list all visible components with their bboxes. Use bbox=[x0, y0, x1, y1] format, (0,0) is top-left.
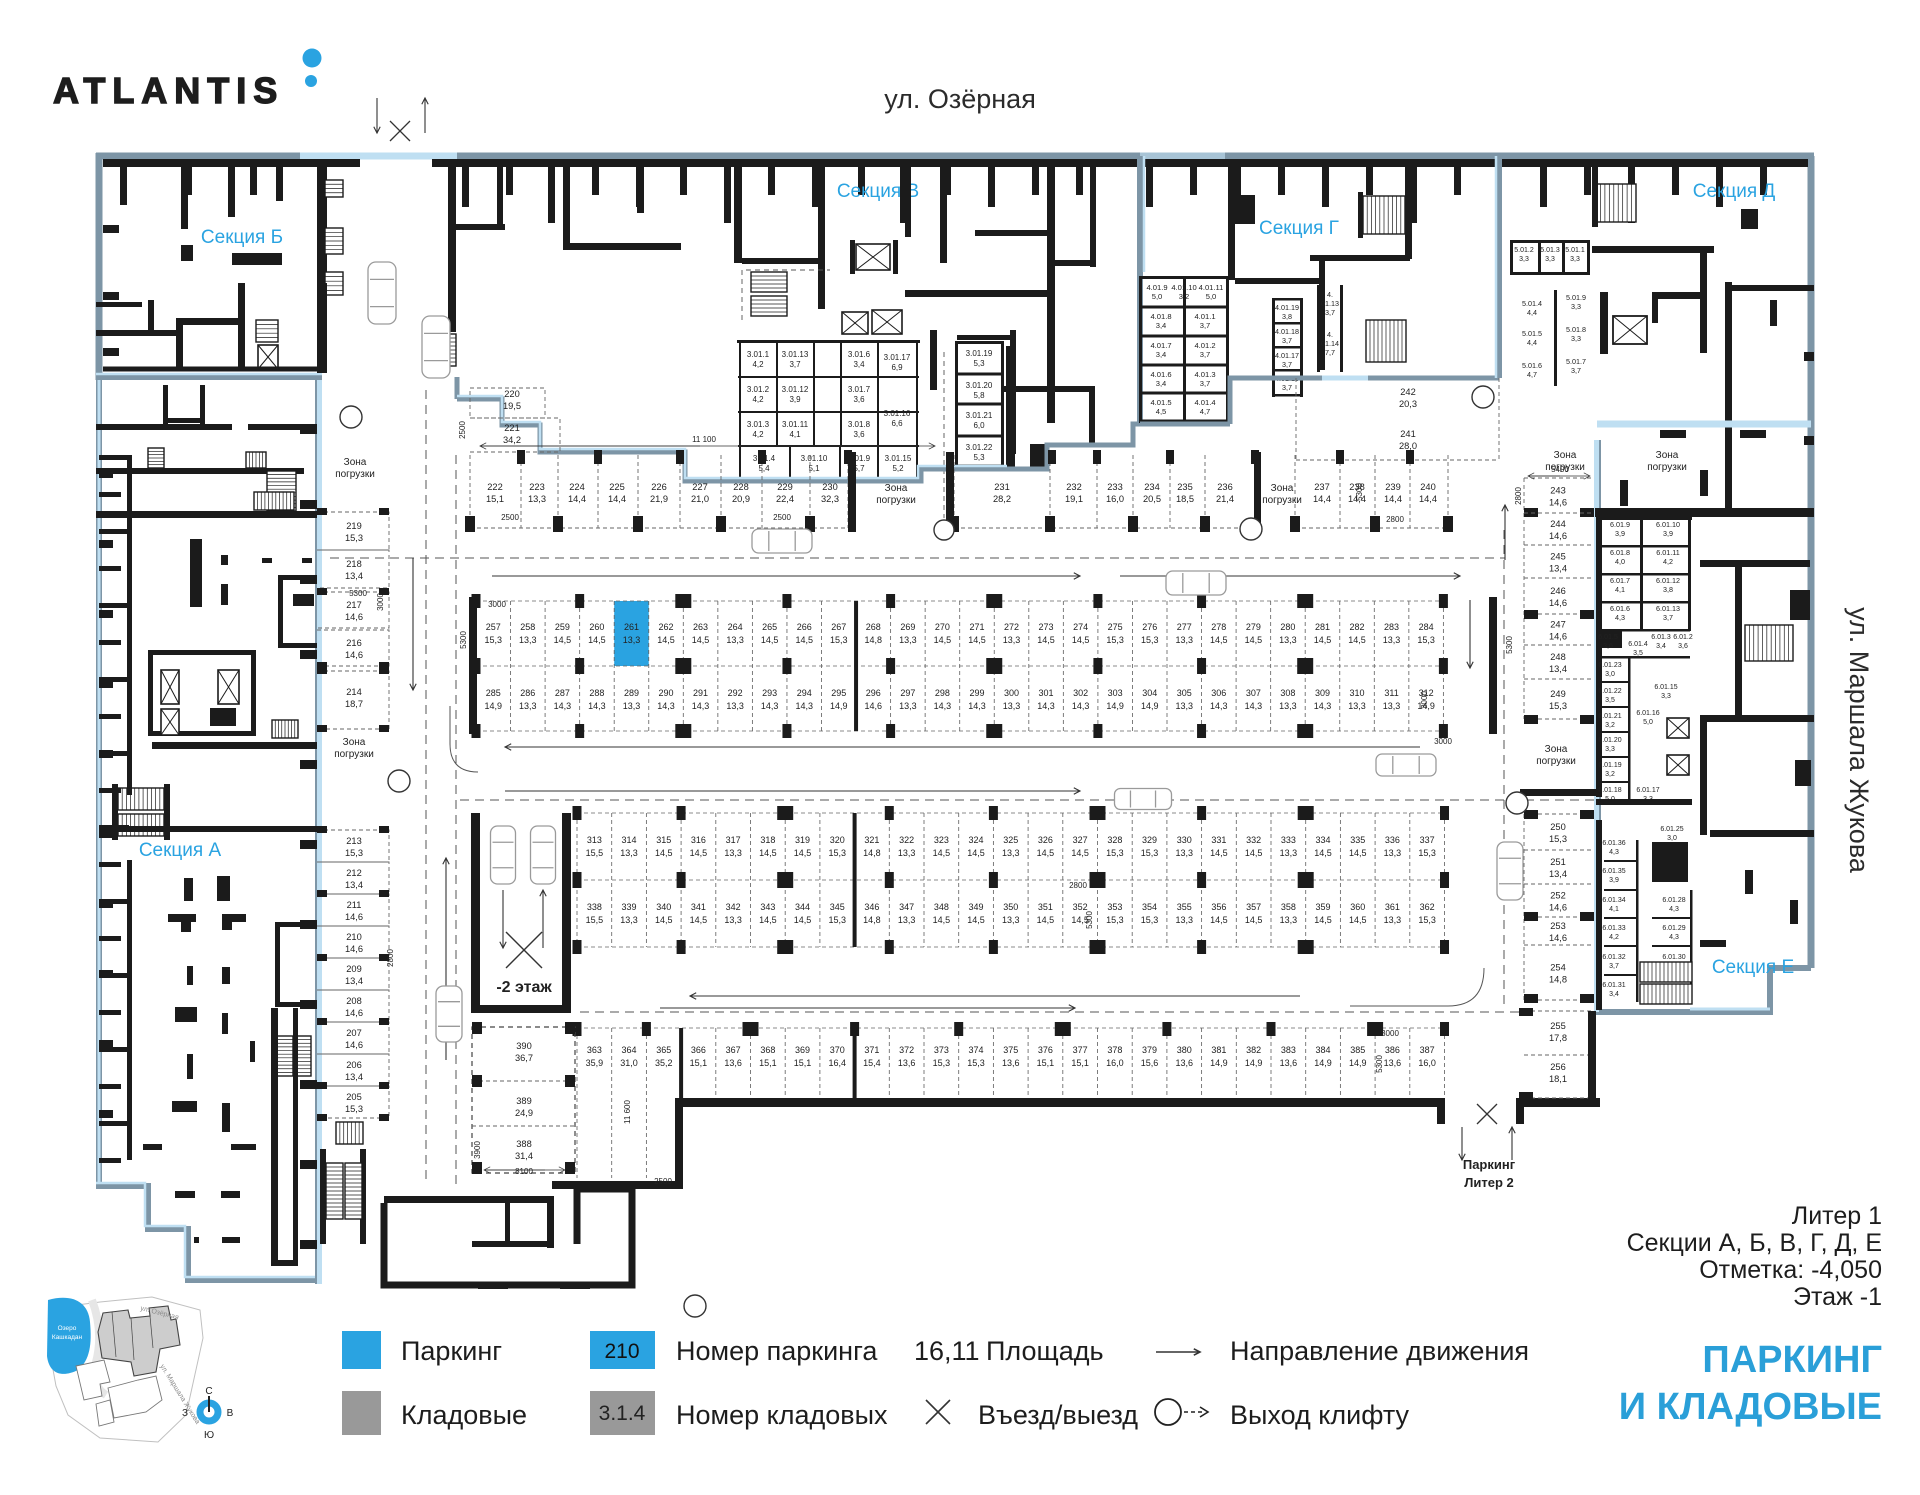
svg-text:6.01.28: 6.01.28 bbox=[1662, 897, 1685, 904]
svg-text:222: 222 bbox=[487, 482, 503, 492]
svg-text:24,9: 24,9 bbox=[515, 1108, 533, 1118]
svg-text:305: 305 bbox=[1177, 688, 1192, 698]
svg-text:4.01.4: 4.01.4 bbox=[1194, 398, 1215, 407]
svg-text:Зона: Зона bbox=[343, 737, 366, 748]
svg-text:334: 334 bbox=[1316, 835, 1331, 845]
svg-text:14,9: 14,9 bbox=[1349, 1058, 1367, 1068]
svg-text:19,1: 19,1 bbox=[1065, 494, 1083, 504]
svg-text:20,9: 20,9 bbox=[732, 494, 750, 504]
svg-text:5.01.7: 5.01.7 bbox=[1566, 357, 1586, 366]
svg-text:14,5: 14,5 bbox=[1348, 635, 1366, 645]
svg-text:365: 365 bbox=[656, 1045, 671, 1055]
svg-text:13,3: 13,3 bbox=[519, 701, 537, 711]
svg-text:13,4: 13,4 bbox=[1549, 564, 1567, 574]
svg-text:Зона: Зона bbox=[885, 483, 908, 494]
svg-text:15,3: 15,3 bbox=[967, 1058, 985, 1068]
svg-text:13,3: 13,3 bbox=[726, 635, 744, 645]
svg-text:6.01.29: 6.01.29 bbox=[1662, 925, 1685, 932]
svg-text:232: 232 bbox=[1066, 482, 1082, 492]
svg-text:15,3: 15,3 bbox=[345, 1104, 363, 1114]
svg-text:15,1: 15,1 bbox=[1071, 1058, 1089, 1068]
svg-text:259: 259 bbox=[555, 622, 570, 632]
svg-text:13,3: 13,3 bbox=[528, 494, 546, 504]
svg-text:330: 330 bbox=[1177, 835, 1192, 845]
svg-text:Зона: Зона bbox=[1554, 450, 1577, 461]
svg-text:4.01.11: 4.01.11 bbox=[1199, 283, 1224, 292]
svg-text:14,3: 14,3 bbox=[1072, 701, 1090, 711]
svg-text:345: 345 bbox=[830, 902, 845, 912]
svg-text:5300: 5300 bbox=[349, 589, 367, 598]
svg-text:18,5: 18,5 bbox=[1176, 494, 1194, 504]
svg-text:13,3: 13,3 bbox=[1384, 915, 1402, 925]
svg-text:233: 233 bbox=[1107, 482, 1123, 492]
svg-text:погрузки: погрузки bbox=[1647, 462, 1687, 473]
svg-text:217: 217 bbox=[346, 600, 362, 610]
svg-text:15,3: 15,3 bbox=[1141, 848, 1159, 858]
svg-text:14,3: 14,3 bbox=[554, 701, 572, 711]
svg-text:6,6: 6,6 bbox=[891, 419, 903, 428]
svg-text:379: 379 bbox=[1142, 1045, 1157, 1055]
svg-text:13,6: 13,6 bbox=[1280, 1058, 1298, 1068]
svg-text:214: 214 bbox=[346, 687, 362, 697]
svg-text:3.01.22: 3.01.22 bbox=[966, 443, 993, 452]
svg-text:3,2: 3,2 bbox=[1605, 722, 1615, 729]
svg-text:Секция Г: Секция Г bbox=[1259, 218, 1339, 239]
svg-text:372: 372 bbox=[899, 1045, 914, 1055]
svg-text:252: 252 bbox=[1550, 891, 1566, 901]
svg-text:6.01.6: 6.01.6 bbox=[1610, 604, 1630, 613]
svg-text:274: 274 bbox=[1073, 622, 1088, 632]
svg-text:275: 275 bbox=[1108, 622, 1123, 632]
svg-text:308: 308 bbox=[1280, 688, 1295, 698]
svg-text:239: 239 bbox=[1385, 482, 1401, 492]
svg-text:3,9: 3,9 bbox=[1663, 529, 1673, 538]
svg-text:3,7: 3,7 bbox=[1663, 613, 1673, 622]
svg-text:5400: 5400 bbox=[1551, 465, 1569, 474]
svg-text:265: 265 bbox=[762, 622, 777, 632]
svg-text:5.01.4: 5.01.4 bbox=[1522, 299, 1542, 308]
svg-text:14,6: 14,6 bbox=[1549, 498, 1567, 508]
svg-text:257: 257 bbox=[486, 622, 501, 632]
svg-text:255: 255 bbox=[1550, 1021, 1566, 1031]
svg-text:15,3: 15,3 bbox=[1418, 848, 1436, 858]
svg-text:15,3: 15,3 bbox=[1141, 915, 1159, 925]
svg-text:6.01.4: 6.01.4 bbox=[1628, 641, 1648, 648]
svg-text:14,6: 14,6 bbox=[1549, 531, 1567, 541]
svg-text:322: 322 bbox=[899, 835, 914, 845]
svg-text:13,3: 13,3 bbox=[1348, 701, 1366, 711]
svg-text:315: 315 bbox=[656, 835, 671, 845]
svg-text:3.01.20: 3.01.20 bbox=[966, 381, 993, 390]
svg-text:287: 287 bbox=[555, 688, 570, 698]
svg-text:243: 243 bbox=[1550, 486, 1566, 496]
svg-text:235: 235 bbox=[1177, 482, 1193, 492]
svg-text:3,4: 3,4 bbox=[1656, 643, 1666, 650]
svg-text:248: 248 bbox=[1550, 652, 1566, 662]
svg-text:251: 251 bbox=[1550, 857, 1566, 867]
svg-text:3.01.1: 3.01.1 bbox=[747, 350, 770, 359]
svg-text:3,2: 3,2 bbox=[1179, 292, 1190, 301]
svg-text:01.13: 01.13 bbox=[1321, 299, 1339, 308]
svg-text:2800: 2800 bbox=[386, 949, 395, 967]
svg-text:4,2: 4,2 bbox=[752, 430, 764, 439]
svg-text:5300: 5300 bbox=[1085, 911, 1094, 929]
svg-text:6.01.31: 6.01.31 bbox=[1602, 982, 1625, 989]
svg-text:14,5: 14,5 bbox=[1314, 848, 1332, 858]
svg-text:6.01.9: 6.01.9 bbox=[1610, 520, 1630, 529]
svg-text:Секция Д: Секция Д bbox=[1693, 181, 1776, 202]
svg-text:369: 369 bbox=[795, 1045, 810, 1055]
svg-text:14,6: 14,6 bbox=[345, 1008, 363, 1018]
svg-text:358: 358 bbox=[1281, 902, 1296, 912]
svg-text:333: 333 bbox=[1281, 835, 1296, 845]
svg-text:6.01.34: 6.01.34 bbox=[1602, 897, 1625, 904]
svg-text:2500: 2500 bbox=[773, 513, 791, 522]
svg-text:376: 376 bbox=[1038, 1045, 1053, 1055]
svg-text:212: 212 bbox=[346, 868, 362, 878]
svg-text:245: 245 bbox=[1550, 552, 1566, 562]
svg-text:278: 278 bbox=[1211, 622, 1226, 632]
svg-text:14,5: 14,5 bbox=[588, 635, 606, 645]
svg-text:13,4: 13,4 bbox=[345, 1072, 363, 1082]
svg-text:Выход клифту: Выход клифту bbox=[1230, 1400, 1410, 1430]
svg-text:19,5: 19,5 bbox=[503, 401, 521, 411]
svg-text:258: 258 bbox=[520, 622, 535, 632]
svg-text:228: 228 bbox=[733, 482, 749, 492]
svg-text:377: 377 bbox=[1073, 1045, 1088, 1055]
svg-text:14,9: 14,9 bbox=[1245, 1058, 1263, 1068]
svg-text:14,3: 14,3 bbox=[1210, 701, 1228, 711]
svg-text:359: 359 bbox=[1316, 902, 1331, 912]
svg-text:14,5: 14,5 bbox=[933, 915, 951, 925]
svg-text:279: 279 bbox=[1246, 622, 1261, 632]
svg-text:326: 326 bbox=[1038, 835, 1053, 845]
svg-text:6.01.19: 6.01.19 bbox=[1598, 762, 1621, 769]
svg-text:389: 389 bbox=[516, 1096, 532, 1106]
svg-text:13,3: 13,3 bbox=[1003, 635, 1021, 645]
svg-text:3.01.12: 3.01.12 bbox=[782, 385, 809, 394]
svg-text:297: 297 bbox=[900, 688, 915, 698]
svg-text:3,7: 3,7 bbox=[1200, 321, 1211, 330]
svg-text:3,8: 3,8 bbox=[1663, 585, 1673, 594]
svg-text:4.: 4. bbox=[1327, 290, 1333, 299]
svg-text:ул. Озёрная: ул. Озёрная bbox=[884, 84, 1036, 114]
svg-text:14,9: 14,9 bbox=[485, 701, 503, 711]
svg-text:211: 211 bbox=[347, 900, 362, 910]
svg-text:18,7: 18,7 bbox=[345, 699, 363, 709]
svg-text:351: 351 bbox=[1038, 902, 1053, 912]
svg-text:5.01.1: 5.01.1 bbox=[1565, 247, 1585, 254]
svg-text:7,7: 7,7 bbox=[1325, 348, 1335, 357]
svg-text:35,2: 35,2 bbox=[655, 1058, 673, 1068]
svg-text:339: 339 bbox=[622, 902, 637, 912]
svg-text:14,6: 14,6 bbox=[345, 612, 363, 622]
svg-text:14,3: 14,3 bbox=[761, 701, 779, 711]
svg-text:15,5: 15,5 bbox=[586, 848, 604, 858]
svg-text:3,5: 3,5 bbox=[1633, 650, 1643, 657]
svg-text:4,3: 4,3 bbox=[1669, 906, 1679, 913]
svg-text:погрузки: погрузки bbox=[334, 749, 374, 760]
svg-text:Зона: Зона bbox=[1271, 483, 1294, 494]
svg-text:4,2: 4,2 bbox=[1609, 934, 1619, 941]
svg-text:354: 354 bbox=[1142, 902, 1157, 912]
svg-text:3,4: 3,4 bbox=[1609, 991, 1619, 998]
svg-text:В: В bbox=[227, 1408, 234, 1419]
svg-text:3,6: 3,6 bbox=[853, 430, 865, 439]
svg-text:374: 374 bbox=[969, 1045, 984, 1055]
svg-text:5.01.6: 5.01.6 bbox=[1522, 361, 1542, 370]
svg-text:262: 262 bbox=[659, 622, 674, 632]
svg-text:14,5: 14,5 bbox=[1245, 915, 1263, 925]
svg-text:226: 226 bbox=[651, 482, 667, 492]
svg-text:3,0: 3,0 bbox=[1605, 671, 1615, 678]
svg-text:погрузки: погрузки bbox=[1262, 495, 1302, 506]
svg-text:14,5: 14,5 bbox=[1037, 635, 1055, 645]
svg-text:352: 352 bbox=[1073, 902, 1088, 912]
svg-text:3.01.7: 3.01.7 bbox=[848, 385, 871, 394]
svg-text:14,5: 14,5 bbox=[934, 635, 952, 645]
svg-text:14,5: 14,5 bbox=[554, 635, 572, 645]
svg-text:256: 256 bbox=[1550, 1062, 1566, 1072]
svg-text:5.01.2: 5.01.2 bbox=[1514, 247, 1534, 254]
svg-text:14,3: 14,3 bbox=[588, 701, 606, 711]
svg-text:348: 348 bbox=[934, 902, 949, 912]
svg-text:373: 373 bbox=[934, 1045, 949, 1055]
svg-text:340: 340 bbox=[656, 902, 671, 912]
svg-text:14,4: 14,4 bbox=[1419, 494, 1437, 504]
svg-text:4,2: 4,2 bbox=[752, 360, 764, 369]
svg-text:5300: 5300 bbox=[459, 631, 468, 649]
svg-text:3.01.6: 3.01.6 bbox=[848, 350, 871, 359]
svg-text:284: 284 bbox=[1419, 622, 1434, 632]
svg-text:20,5: 20,5 bbox=[1143, 494, 1161, 504]
svg-text:14,4: 14,4 bbox=[1313, 494, 1331, 504]
svg-text:356: 356 bbox=[1211, 902, 1226, 912]
svg-text:3,0: 3,0 bbox=[1667, 835, 1677, 842]
svg-text:6.01.32: 6.01.32 bbox=[1602, 954, 1625, 961]
svg-text:207: 207 bbox=[346, 1028, 362, 1038]
svg-text:313: 313 bbox=[587, 835, 602, 845]
svg-text:Номер паркинга: Номер паркинга bbox=[676, 1336, 878, 1366]
svg-text:254: 254 bbox=[1550, 963, 1566, 973]
svg-text:3900: 3900 bbox=[473, 1141, 482, 1159]
svg-text:306: 306 bbox=[1211, 688, 1226, 698]
svg-text:236: 236 bbox=[1217, 482, 1233, 492]
svg-text:Направление движения: Направление движения bbox=[1230, 1336, 1529, 1366]
svg-text:15,1: 15,1 bbox=[690, 1058, 708, 1068]
svg-text:И КЛАДОВЫЕ: И КЛАДОВЫЕ bbox=[1619, 1386, 1882, 1428]
svg-text:362: 362 bbox=[1420, 902, 1435, 912]
svg-text:4,5: 4,5 bbox=[1156, 407, 1167, 416]
svg-text:Кладовые: Кладовые bbox=[401, 1400, 527, 1430]
svg-text:13,3: 13,3 bbox=[724, 915, 742, 925]
svg-text:17,8: 17,8 bbox=[1549, 1033, 1567, 1043]
svg-text:218: 218 bbox=[346, 559, 362, 569]
svg-text:13,3: 13,3 bbox=[623, 635, 641, 645]
svg-text:28,2: 28,2 bbox=[993, 494, 1011, 504]
svg-text:14,5: 14,5 bbox=[1037, 848, 1055, 858]
svg-text:Зона: Зона bbox=[1545, 744, 1568, 755]
svg-text:28,0: 28,0 bbox=[1399, 441, 1417, 451]
svg-text:15,3: 15,3 bbox=[828, 915, 846, 925]
svg-text:13,3: 13,3 bbox=[1002, 915, 1020, 925]
svg-text:6,0: 6,0 bbox=[973, 421, 985, 430]
svg-text:21,0: 21,0 bbox=[691, 494, 709, 504]
svg-text:300: 300 bbox=[1004, 688, 1019, 698]
svg-text:3,3: 3,3 bbox=[1519, 256, 1529, 263]
svg-text:229: 229 bbox=[777, 482, 793, 492]
svg-text:6.01.21: 6.01.21 bbox=[1598, 713, 1621, 720]
svg-text:364: 364 bbox=[622, 1045, 637, 1055]
svg-text:331: 331 bbox=[1211, 835, 1226, 845]
svg-text:390: 390 bbox=[516, 1041, 532, 1051]
svg-text:14,8: 14,8 bbox=[865, 635, 883, 645]
svg-text:219: 219 bbox=[346, 521, 362, 531]
svg-text:386: 386 bbox=[1385, 1045, 1400, 1055]
svg-text:3.01.2: 3.01.2 bbox=[747, 385, 770, 394]
svg-text:14,5: 14,5 bbox=[1037, 915, 1055, 925]
svg-text:4,3: 4,3 bbox=[1669, 934, 1679, 941]
svg-text:14,5: 14,5 bbox=[1245, 635, 1263, 645]
svg-text:14,5: 14,5 bbox=[794, 848, 812, 858]
svg-text:272: 272 bbox=[1004, 622, 1019, 632]
svg-text:6.01.35: 6.01.35 bbox=[1602, 868, 1625, 875]
svg-text:Въезд/выезд: Въезд/выезд bbox=[978, 1400, 1138, 1430]
svg-text:13,3: 13,3 bbox=[1383, 701, 1401, 711]
svg-text:332: 332 bbox=[1246, 835, 1261, 845]
svg-text:5,3: 5,3 bbox=[973, 453, 985, 462]
svg-text:269: 269 bbox=[900, 622, 915, 632]
svg-text:3,7: 3,7 bbox=[789, 360, 801, 369]
svg-text:4.01.7: 4.01.7 bbox=[1150, 341, 1171, 350]
svg-text:368: 368 bbox=[760, 1045, 775, 1055]
svg-text:4.01.6: 4.01.6 bbox=[1150, 370, 1171, 379]
svg-text:6.01.10: 6.01.10 bbox=[1656, 520, 1680, 529]
svg-text:15,3: 15,3 bbox=[1106, 635, 1124, 645]
svg-text:Площадь: Площадь bbox=[986, 1336, 1104, 1366]
svg-text:295: 295 bbox=[831, 688, 846, 698]
svg-text:Отметка: -4,050: Отметка: -4,050 bbox=[1699, 1256, 1882, 1284]
svg-text:264: 264 bbox=[728, 622, 743, 632]
svg-text:13,3: 13,3 bbox=[1175, 848, 1193, 858]
svg-text:34,2: 34,2 bbox=[503, 435, 521, 445]
svg-text:249: 249 bbox=[1550, 689, 1566, 699]
svg-text:13,3: 13,3 bbox=[623, 701, 641, 711]
svg-text:14,5: 14,5 bbox=[690, 915, 708, 925]
svg-text:3000: 3000 bbox=[488, 600, 506, 609]
svg-text:13,3: 13,3 bbox=[899, 635, 917, 645]
svg-text:221: 221 bbox=[504, 423, 520, 433]
svg-text:237: 237 bbox=[1314, 482, 1330, 492]
svg-text:6.01.18: 6.01.18 bbox=[1598, 787, 1621, 794]
svg-text:6.01.15: 6.01.15 bbox=[1654, 684, 1677, 691]
svg-text:281: 281 bbox=[1315, 622, 1330, 632]
svg-text:15,3: 15,3 bbox=[1417, 635, 1435, 645]
svg-text:5.01.9: 5.01.9 bbox=[1566, 293, 1586, 302]
svg-text:14,3: 14,3 bbox=[657, 701, 675, 711]
svg-text:3,9: 3,9 bbox=[1609, 877, 1619, 884]
svg-text:4,7: 4,7 bbox=[1200, 407, 1211, 416]
svg-text:15,1: 15,1 bbox=[486, 494, 504, 504]
svg-text:3,7: 3,7 bbox=[1282, 360, 1292, 369]
svg-text:247: 247 bbox=[1550, 620, 1566, 630]
svg-text:5.01.3: 5.01.3 bbox=[1540, 247, 1560, 254]
svg-text:14,3: 14,3 bbox=[1037, 701, 1055, 711]
svg-text:14,9: 14,9 bbox=[830, 701, 848, 711]
svg-text:5,2: 5,2 bbox=[892, 464, 904, 473]
svg-text:342: 342 bbox=[726, 902, 741, 912]
svg-text:384: 384 bbox=[1316, 1045, 1331, 1055]
svg-text:14,6: 14,6 bbox=[1549, 632, 1567, 642]
svg-text:13,3: 13,3 bbox=[1175, 915, 1193, 925]
svg-text:13,6: 13,6 bbox=[1002, 1058, 1020, 1068]
svg-text:3.01.3: 3.01.3 bbox=[747, 420, 770, 429]
svg-text:14,3: 14,3 bbox=[968, 701, 986, 711]
svg-text:303: 303 bbox=[1108, 688, 1123, 698]
svg-text:Кашкадан: Кашкадан bbox=[52, 1334, 83, 1341]
svg-text:14,6: 14,6 bbox=[1549, 933, 1567, 943]
svg-text:290: 290 bbox=[659, 688, 674, 698]
svg-text:14,8: 14,8 bbox=[863, 848, 881, 858]
svg-text:224: 224 bbox=[569, 482, 585, 492]
svg-text:3000: 3000 bbox=[376, 593, 385, 611]
svg-text:280: 280 bbox=[1280, 622, 1295, 632]
svg-text:14,5: 14,5 bbox=[967, 915, 985, 925]
svg-text:4,2: 4,2 bbox=[1663, 557, 1673, 566]
svg-text:14,6: 14,6 bbox=[1549, 598, 1567, 608]
svg-text:14,4: 14,4 bbox=[608, 494, 626, 504]
svg-text:21,4: 21,4 bbox=[1216, 494, 1234, 504]
svg-text:13,3: 13,3 bbox=[1003, 701, 1021, 711]
svg-text:Секция А: Секция А bbox=[139, 840, 222, 861]
svg-text:388: 388 bbox=[516, 1139, 532, 1149]
svg-text:5,0: 5,0 bbox=[1643, 719, 1653, 726]
svg-text:3,4: 3,4 bbox=[1156, 379, 1167, 388]
svg-text:3.01.11: 3.01.11 bbox=[782, 420, 809, 429]
svg-text:291: 291 bbox=[693, 688, 708, 698]
svg-text:4,7: 4,7 bbox=[1527, 370, 1537, 379]
svg-text:4.01.2: 4.01.2 bbox=[1194, 341, 1215, 350]
svg-text:14,5: 14,5 bbox=[794, 915, 812, 925]
svg-text:13,3: 13,3 bbox=[620, 915, 638, 925]
svg-text:6.01.36: 6.01.36 bbox=[1602, 840, 1625, 847]
svg-text:Этаж -1: Этаж -1 bbox=[1793, 1283, 1882, 1311]
svg-text:4,1: 4,1 bbox=[1615, 585, 1625, 594]
svg-text:14,3: 14,3 bbox=[795, 701, 813, 711]
svg-text:240: 240 bbox=[1420, 482, 1436, 492]
svg-text:234: 234 bbox=[1144, 482, 1160, 492]
svg-text:3.01.8: 3.01.8 bbox=[848, 420, 871, 429]
svg-text:3,6: 3,6 bbox=[1603, 643, 1613, 650]
svg-text:13,4: 13,4 bbox=[345, 571, 363, 581]
svg-text:344: 344 bbox=[795, 902, 810, 912]
svg-text:289: 289 bbox=[624, 688, 639, 698]
svg-text:210: 210 bbox=[604, 1340, 639, 1363]
svg-text:304: 304 bbox=[1142, 688, 1157, 698]
svg-text:3,4: 3,4 bbox=[1156, 350, 1167, 359]
svg-text:298: 298 bbox=[935, 688, 950, 698]
svg-text:311: 311 bbox=[1384, 688, 1398, 698]
svg-text:3,3: 3,3 bbox=[1661, 693, 1671, 700]
svg-text:250: 250 bbox=[1550, 822, 1566, 832]
svg-text:307: 307 bbox=[1246, 688, 1261, 698]
svg-text:350: 350 bbox=[1003, 902, 1018, 912]
svg-text:4.01.17: 4.01.17 bbox=[1275, 351, 1299, 360]
svg-text:336: 336 bbox=[1385, 835, 1400, 845]
svg-text:316: 316 bbox=[691, 835, 706, 845]
svg-text:3,7: 3,7 bbox=[1282, 383, 1292, 392]
svg-text:3.01.15: 3.01.15 bbox=[885, 454, 912, 463]
